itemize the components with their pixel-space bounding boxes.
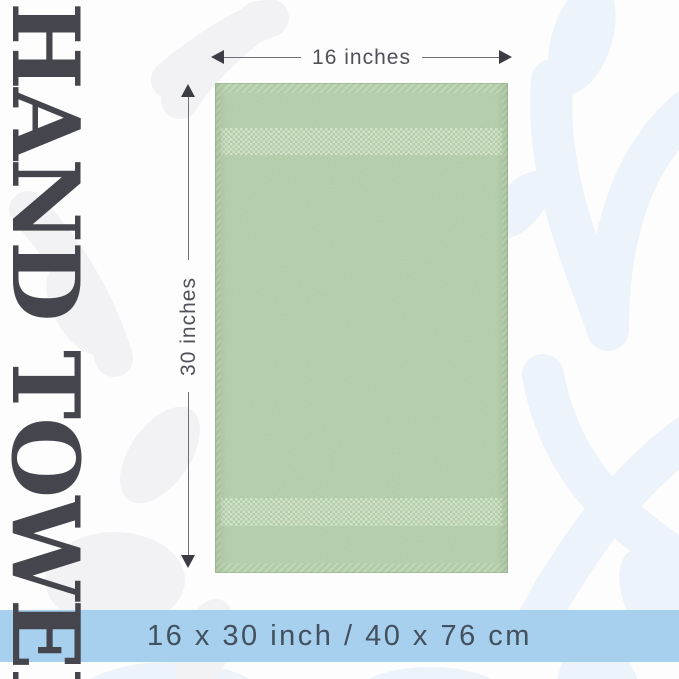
dimension-line bbox=[188, 97, 189, 260]
watermark-leaf-icon bbox=[345, 667, 515, 679]
watermark-leaf-icon bbox=[75, 662, 265, 679]
height-dimension-label-slot: 30 inches bbox=[139, 260, 238, 392]
arrow-right-icon bbox=[499, 50, 512, 64]
dimension-line bbox=[224, 57, 301, 58]
dimension-line bbox=[188, 392, 189, 555]
arrow-up-icon bbox=[181, 84, 195, 97]
height-dimension-label: 30 inches bbox=[178, 277, 199, 376]
watermark-branch-icon bbox=[608, 110, 679, 330]
watermark-branch-icon bbox=[551, 80, 608, 330]
arrow-left-icon bbox=[211, 50, 224, 64]
size-bar-text: 16 x 30 inch / 40 x 76 cm bbox=[147, 622, 532, 651]
towel-image bbox=[215, 83, 508, 573]
width-dimension-label: 16 inches bbox=[301, 47, 422, 68]
product-title-vertical: HAND TOWEL bbox=[8, 2, 82, 679]
size-bar: 16 x 30 inch / 40 x 76 cm bbox=[0, 610, 679, 662]
product-dimension-image: 16 inches 30 inches 16 x 30 inch / 40 x … bbox=[0, 0, 679, 679]
arrow-down-icon bbox=[181, 555, 195, 568]
width-dimension-annotation: 16 inches bbox=[211, 45, 512, 69]
towel-edge-shading bbox=[215, 83, 508, 573]
dimension-line bbox=[422, 57, 499, 58]
height-dimension-annotation: 30 inches bbox=[176, 84, 200, 568]
